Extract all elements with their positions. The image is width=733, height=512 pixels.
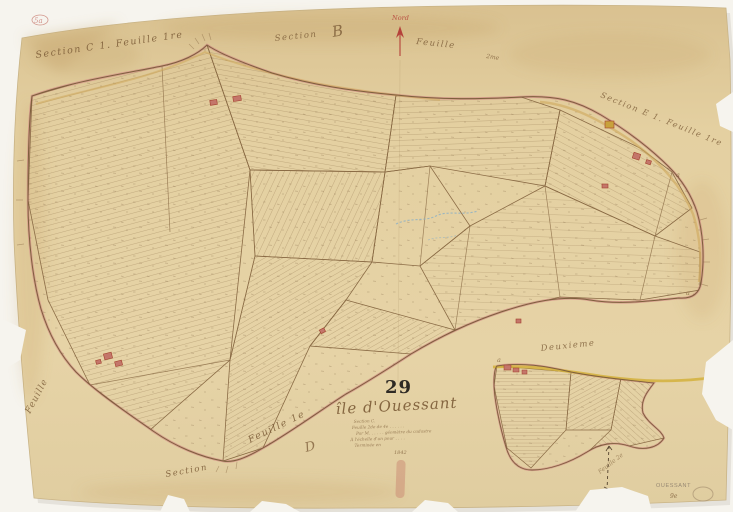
marker-a-1: a (676, 171, 680, 179)
marker-a-3: a (497, 356, 501, 364)
title-line-1: Section C. (354, 418, 376, 424)
corner-mark-text: 5a (34, 17, 43, 25)
red-wash-mark (395, 460, 405, 498)
map-canvas: Nord Section C 1. Feuille 1re Section B … (0, 0, 733, 512)
plan-number: 29 (385, 377, 412, 398)
marker-a-2: a (686, 289, 690, 297)
title-line-5: Terminée en (354, 442, 381, 448)
stamp-number: 9e (670, 493, 678, 500)
corner-red-mark: 5a (32, 15, 48, 25)
stamp-name: OUESSANT (656, 483, 691, 489)
title-year: 1842 (394, 450, 407, 456)
scanned-cadastral-map: Nord Section C 1. Feuille 1re Section B … (0, 0, 733, 512)
north-label: Nord (391, 14, 409, 22)
yellow-building (605, 121, 614, 128)
